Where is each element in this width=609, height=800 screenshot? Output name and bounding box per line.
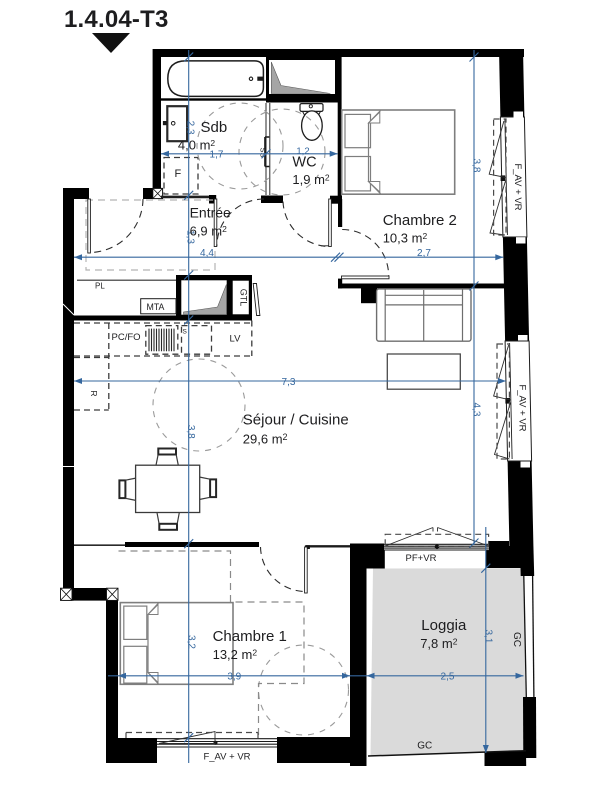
svg-text:F_AV + VR: F_AV + VR — [203, 752, 250, 763]
svg-text:1,7: 1,7 — [210, 150, 224, 161]
svg-text:S: S — [183, 329, 188, 336]
svg-text:7,8 m2: 7,8 m2 — [420, 636, 458, 651]
svg-text:2,5: 2,5 — [441, 671, 455, 682]
svg-text:GC: GC — [417, 741, 432, 752]
svg-text:3,1: 3,1 — [482, 630, 493, 644]
svg-text:7,3: 7,3 — [282, 377, 296, 388]
svg-text:R: R — [89, 390, 99, 396]
svg-text:MTA: MTA — [147, 302, 165, 312]
svg-text:4,3: 4,3 — [471, 403, 482, 417]
svg-text:Entrée: Entrée — [190, 205, 231, 221]
svg-text:4,0 m2: 4,0 m2 — [178, 138, 216, 153]
svg-text:29,6 m2: 29,6 m2 — [243, 432, 288, 447]
svg-text:3,8: 3,8 — [471, 159, 482, 173]
svg-text:Séjour / Cuisine: Séjour / Cuisine — [243, 412, 349, 429]
svg-text:1,9 m2: 1,9 m2 — [292, 172, 330, 187]
svg-text:F_AV + VR: F_AV + VR — [516, 384, 527, 431]
svg-text:13,2 m2: 13,2 m2 — [213, 647, 258, 662]
svg-text:F_AV + VR: F_AV + VR — [512, 163, 523, 210]
svg-text:2,3: 2,3 — [185, 121, 196, 135]
svg-text:LV: LV — [230, 334, 242, 345]
svg-text:PF+VR: PF+VR — [406, 553, 437, 564]
svg-text:GC: GC — [511, 632, 522, 647]
svg-text:WC: WC — [292, 155, 316, 171]
svg-text:Sdb: Sdb — [201, 119, 228, 136]
svg-text:Chambre 2: Chambre 2 — [383, 212, 457, 229]
svg-text:Chambre 1: Chambre 1 — [213, 628, 287, 645]
svg-text:2,7: 2,7 — [417, 248, 431, 259]
svg-text:PC/FO: PC/FO — [112, 332, 141, 343]
svg-text:F: F — [175, 168, 182, 180]
svg-text:3,9: 3,9 — [227, 672, 241, 683]
svg-text:GTL: GTL — [239, 289, 249, 307]
svg-text:6,9 m2: 6,9 m2 — [190, 223, 228, 238]
svg-text:10,3 m2: 10,3 m2 — [383, 231, 428, 246]
svg-text:PL: PL — [95, 282, 105, 291]
svg-text:3,8: 3,8 — [185, 425, 196, 439]
svg-text:4,4: 4,4 — [200, 248, 214, 259]
svg-text:1.4.04-T3: 1.4.04-T3 — [64, 6, 169, 33]
svg-text:Loggia: Loggia — [421, 617, 467, 634]
svg-text:3,2: 3,2 — [185, 635, 196, 649]
